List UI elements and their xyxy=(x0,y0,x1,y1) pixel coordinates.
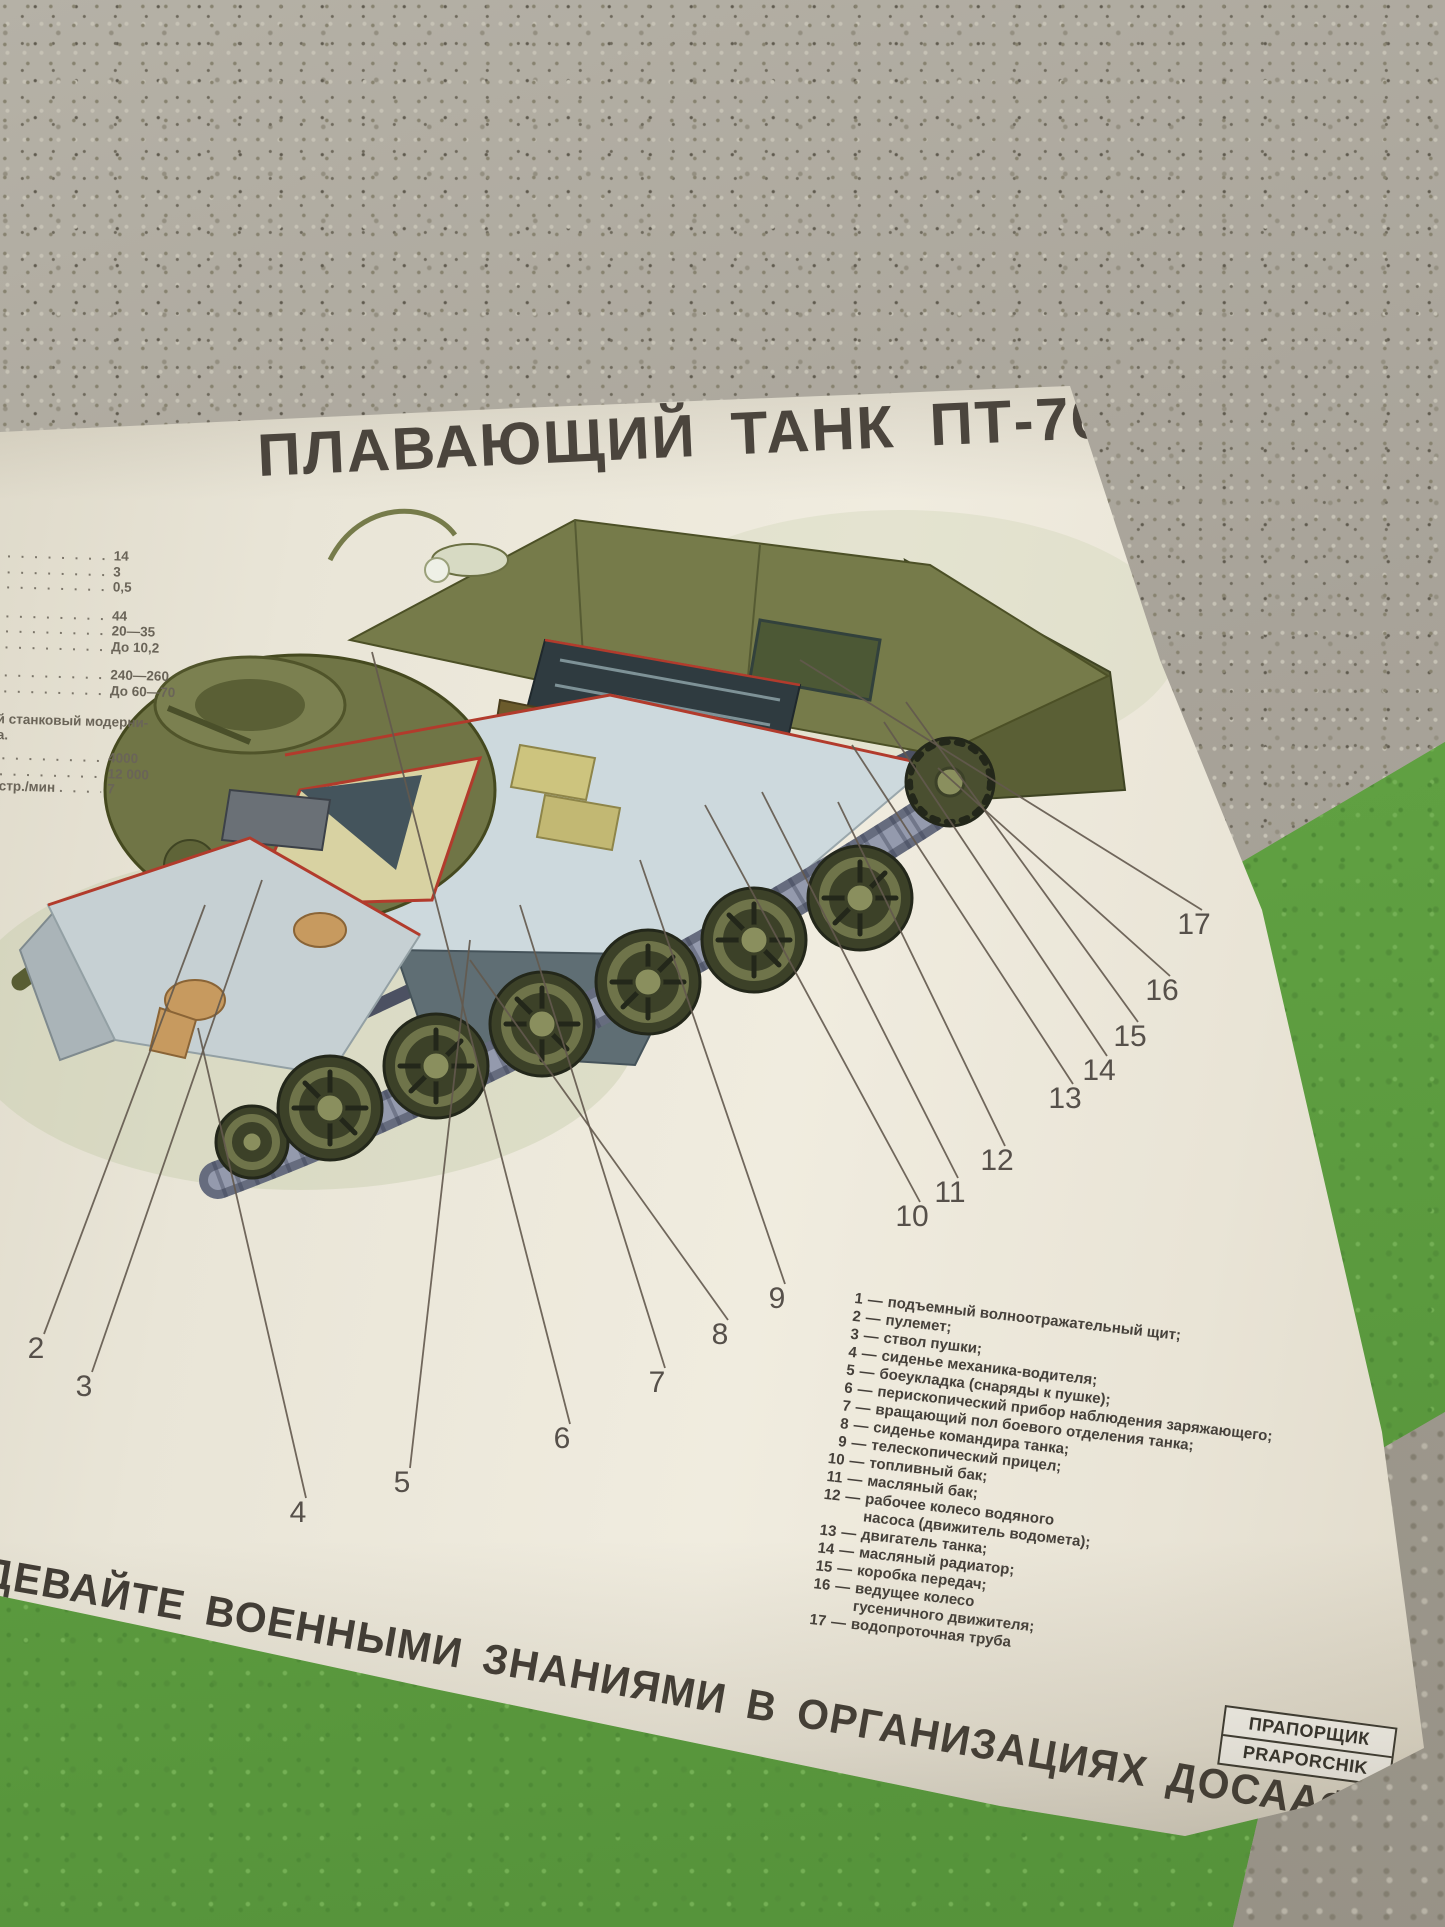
callout-line-2 xyxy=(44,905,205,1334)
hull-deck xyxy=(350,520,1108,755)
track-return-run xyxy=(315,748,930,1035)
callout-line-9 xyxy=(640,860,785,1284)
callout-number-9: 9 xyxy=(769,1282,786,1315)
callout-number-13: 13 xyxy=(1048,1082,1081,1115)
turret-interior-dark xyxy=(300,775,422,870)
commander-seat xyxy=(294,913,346,947)
ammo-rack xyxy=(511,745,595,800)
gun-breech xyxy=(222,790,330,850)
parts-legend: 1—подъемный волноотражательный щит;2—пул… xyxy=(799,1288,1374,1689)
bow-tip xyxy=(20,905,115,1060)
callout-number-12: 12 xyxy=(980,1144,1013,1177)
green-wash xyxy=(620,510,1180,770)
track-band xyxy=(218,795,958,1180)
callout-line-17 xyxy=(800,660,1202,910)
radiator-fins xyxy=(492,720,556,770)
callout-number-17: 17 xyxy=(1177,908,1210,941)
callout-line-6 xyxy=(372,652,570,1424)
road-wheels xyxy=(216,738,994,1178)
callout-line-12 xyxy=(838,802,1005,1146)
callout-line-16 xyxy=(938,768,1170,976)
deck-hatch xyxy=(432,544,508,576)
turret-hatch xyxy=(195,679,305,731)
driver-seat xyxy=(165,980,225,1020)
cut-edge-red xyxy=(285,695,930,765)
gun-muzzle xyxy=(20,952,60,982)
cut-edge-red xyxy=(545,640,800,685)
callout-number-16: 16 xyxy=(1145,974,1178,1007)
gun-barrel xyxy=(28,872,180,978)
callout-number-3: 3 xyxy=(76,1370,93,1403)
callout-line-14 xyxy=(884,722,1107,1056)
gun-mantlet xyxy=(164,840,216,892)
deck-lines xyxy=(575,520,760,710)
spec-list: . . . . . . . . . . . . . . . . . . . . … xyxy=(0,545,194,799)
interior-floor-cut xyxy=(285,695,930,960)
callout-number-5: 5 xyxy=(394,1466,411,1499)
handrail xyxy=(330,511,455,560)
callout-number-11: 11 xyxy=(934,1176,965,1209)
callout-number-8: 8 xyxy=(712,1318,729,1351)
callout-line-15 xyxy=(906,702,1138,1022)
bow-interior xyxy=(48,838,420,1075)
spec-note: ей станковый модерни-ва. xyxy=(0,711,189,749)
hull-rear-side xyxy=(905,560,1125,800)
cut-edge-red xyxy=(48,838,420,935)
callout-line-5 xyxy=(410,940,470,1468)
callout-line-3 xyxy=(92,880,262,1372)
engine-compartment xyxy=(520,640,800,795)
callout-number-15: 15 xyxy=(1113,1020,1146,1053)
track-treads xyxy=(218,795,958,1180)
callout-number-6: 6 xyxy=(554,1422,571,1455)
green-wash xyxy=(0,850,640,1190)
engine-ribs xyxy=(548,660,780,750)
callout-number-14: 14 xyxy=(1082,1054,1115,1087)
callout-line-10 xyxy=(705,805,920,1202)
callout-line-8 xyxy=(470,960,728,1320)
radiator xyxy=(488,700,560,790)
driver-seat-back xyxy=(150,1008,196,1058)
ammo-rack xyxy=(537,795,620,850)
callout-number-7: 7 xyxy=(649,1366,666,1399)
track-band-inner xyxy=(218,795,958,1180)
callout-number-10: 10 xyxy=(895,1200,928,1233)
headlight xyxy=(425,558,449,582)
water-duct xyxy=(750,620,880,700)
turret-cut-interior xyxy=(252,758,480,905)
photo-of-poster-on-wall: { "scene": { "wall_top_color": "#aba69c"… xyxy=(0,0,1445,1927)
callout-number-2: 2 xyxy=(28,1332,45,1365)
interior-floor xyxy=(395,950,690,1065)
callout-line-7 xyxy=(520,905,665,1368)
callout-line-11 xyxy=(762,792,958,1178)
callout-line-13 xyxy=(852,745,1073,1084)
callout-line-4 xyxy=(198,1028,306,1498)
callout-number-4: 4 xyxy=(290,1496,307,1529)
